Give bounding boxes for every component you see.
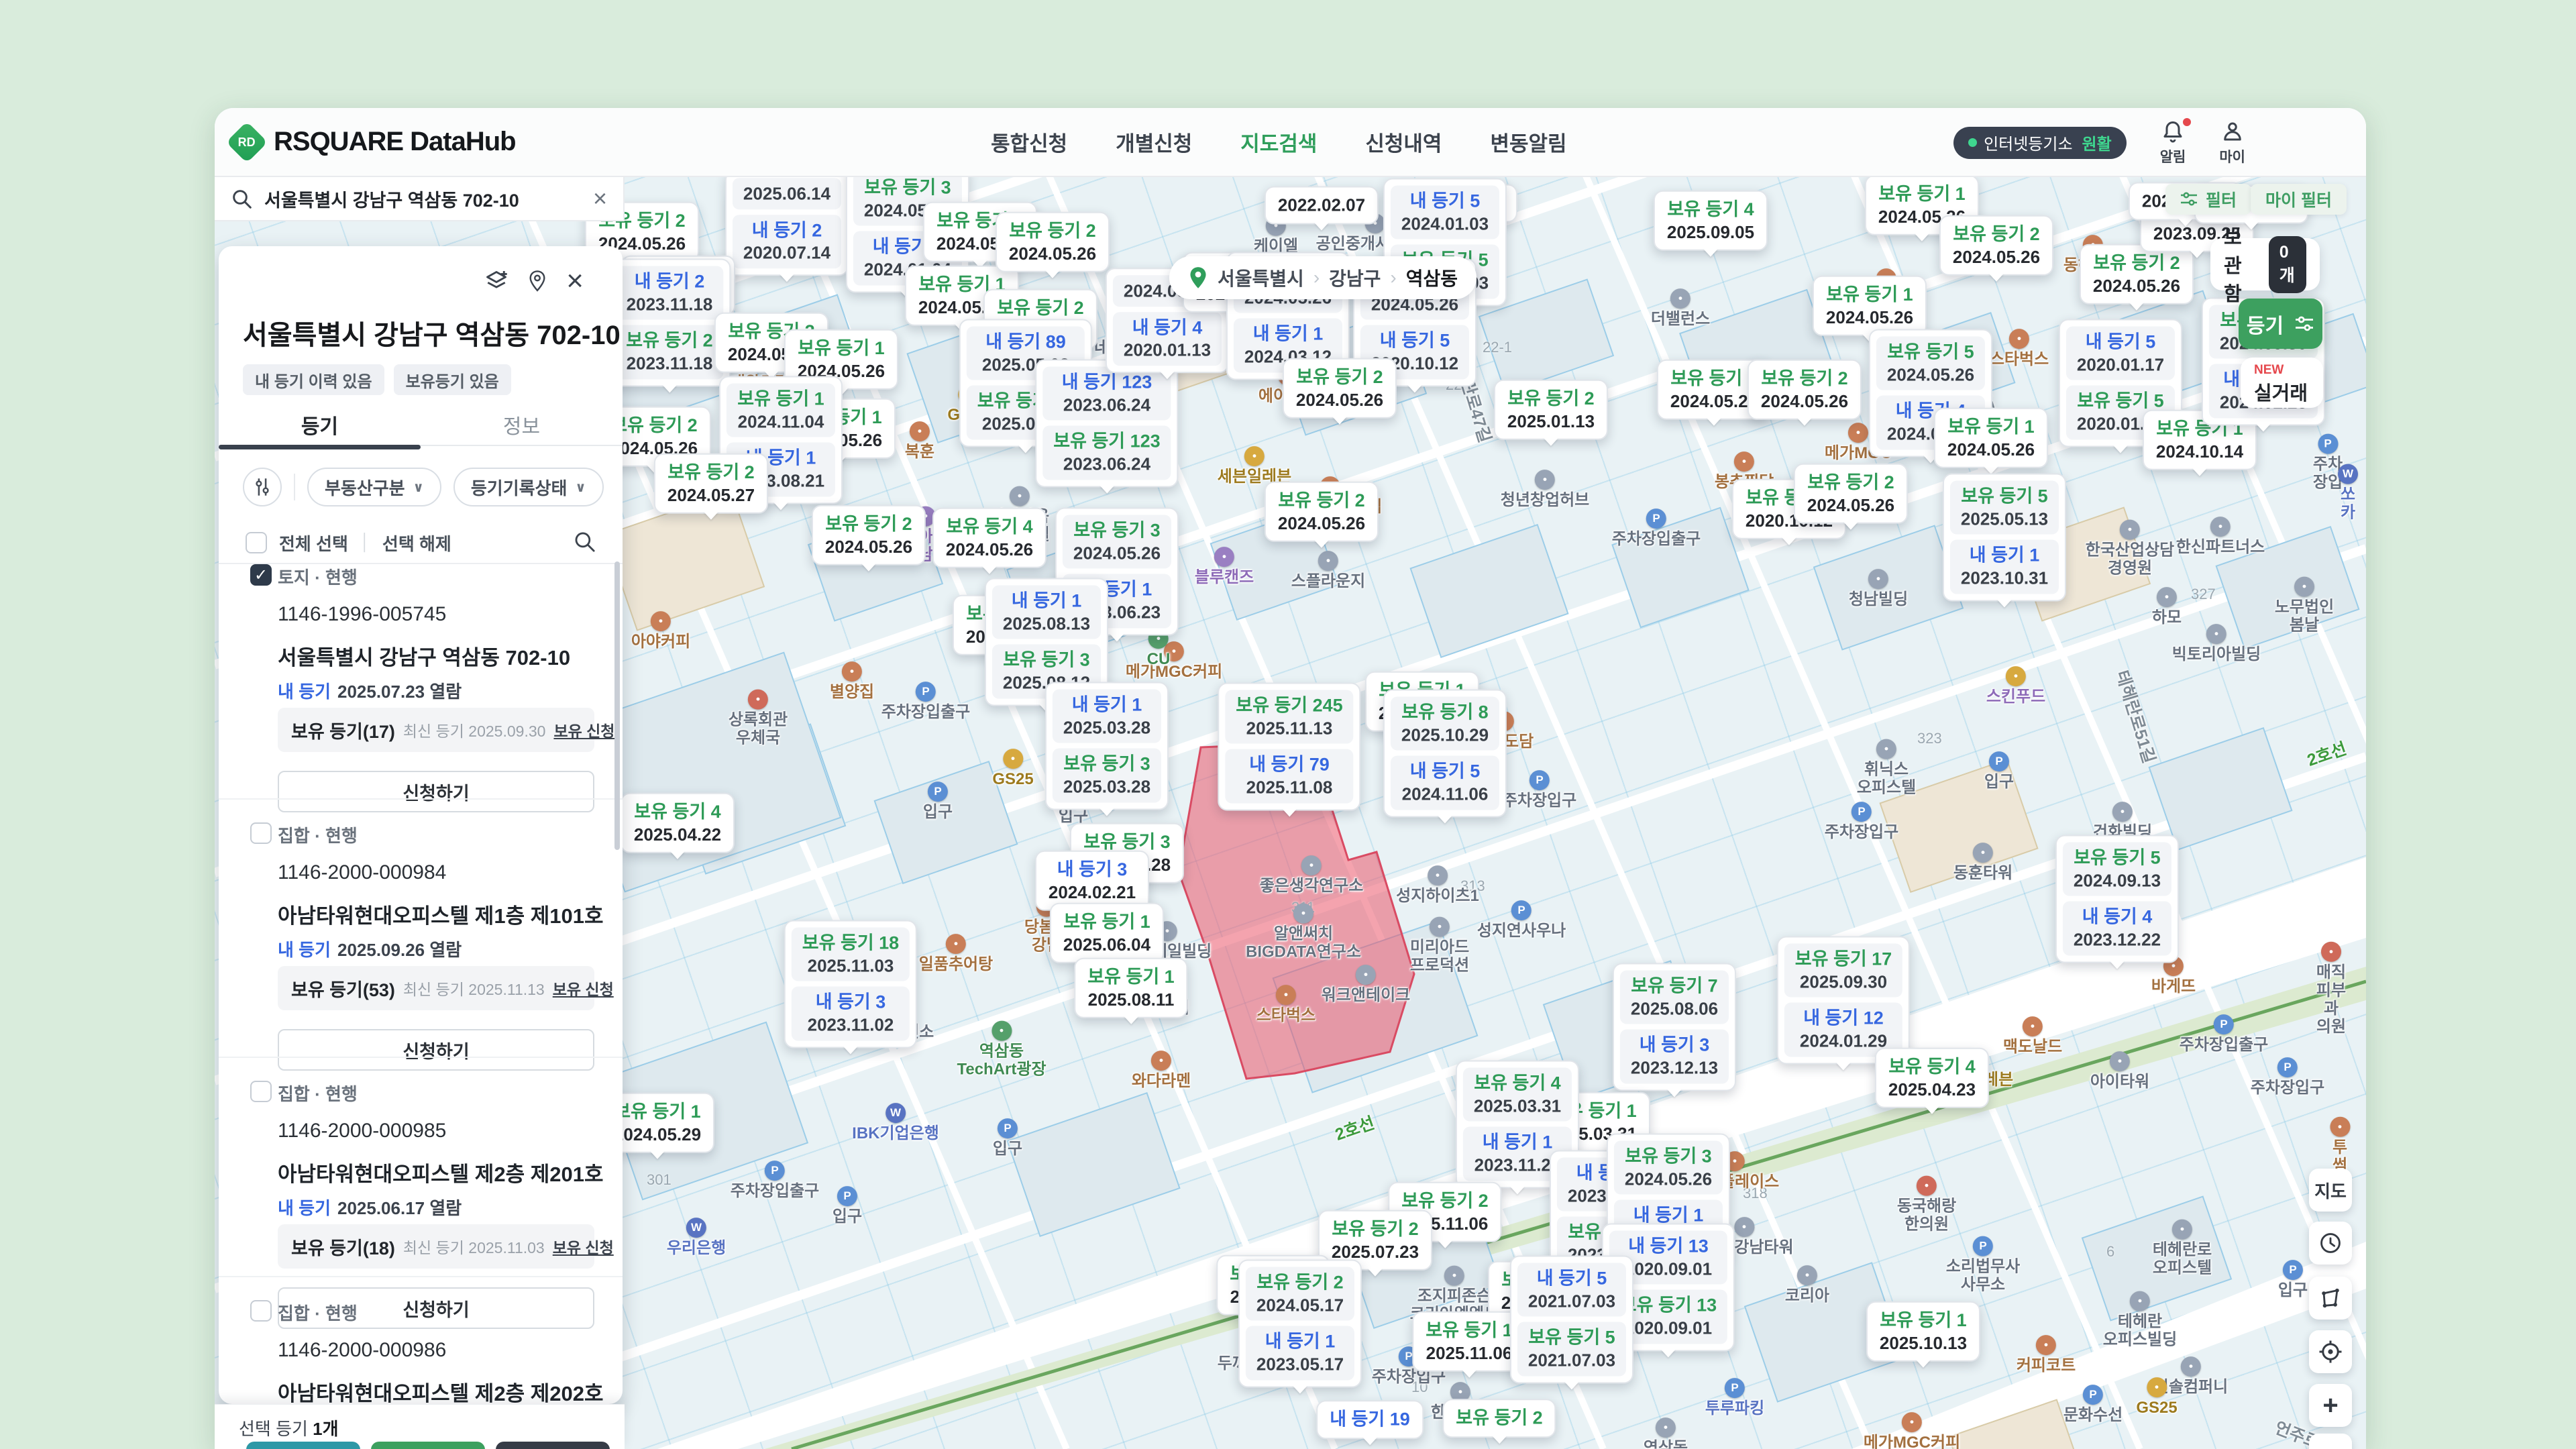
map-poi: • 메가MGC커피 <box>1126 641 1222 682</box>
panel-title: 서울특별시 강남구 역삼동 702-10 <box>243 313 621 352</box>
map-building <box>1008 1093 1180 1236</box>
nav-item-신청내역[interactable]: 신청내역 <box>1365 127 1442 157</box>
map-callout[interactable]: 내 등기 32024.02.21 <box>1035 851 1149 911</box>
map-poi: • 스타벅스 <box>1990 329 2049 369</box>
area-measure-button[interactable] <box>2309 1277 2352 1320</box>
map-poi: • 동훈타워 <box>1953 843 2012 883</box>
map-poi: • 와다라멘 <box>1132 1051 1191 1091</box>
poi-icon: P <box>998 1118 1018 1138</box>
map-poi: • 상록회관 우체국 <box>729 690 788 748</box>
poi-icon: • <box>2321 942 2341 962</box>
map-poi: • 메가MGC커피 <box>1864 1412 1960 1449</box>
map-building <box>2149 728 2292 850</box>
person-icon <box>2220 119 2245 144</box>
nav-item-지도검색[interactable]: 지도검색 <box>1240 127 1317 157</box>
poi-icon: P <box>2283 1260 2303 1280</box>
parcel-number: 323 <box>1917 730 1942 747</box>
map-poi: • 청남빌딩 <box>1849 569 1908 609</box>
poi-icon: • <box>1973 843 1993 863</box>
map-poi: • 코리아 <box>1785 1265 1829 1305</box>
map-poi: • 하모 <box>2152 587 2182 627</box>
storage-count-badge: 0개 <box>2269 236 2306 293</box>
map-poi: • 빅토리아빌딩 <box>2172 624 2261 664</box>
map-poi: • 테헤란로 오피스텔 <box>2153 1220 2212 1278</box>
nav-item-개별신청[interactable]: 개별신청 <box>1116 127 1192 157</box>
own-apply-link[interactable]: 보유 신청 <box>553 977 614 1000</box>
my-location-button[interactable] <box>2309 1330 2352 1373</box>
poi-icon: • <box>2120 520 2140 540</box>
breadcrumb[interactable]: 서울특별시 › 강남구 › 역삼동 <box>1169 256 1477 299</box>
poi-icon: P <box>1973 1236 1993 1256</box>
poi-icon: • <box>1656 1417 1676 1438</box>
active-tab-underline <box>219 445 421 449</box>
divider <box>219 1276 623 1277</box>
map-callout[interactable]: 보유 등기 12025.10.13 <box>1866 1301 1980 1362</box>
map-type-button[interactable]: 지도 <box>2309 1169 2352 1212</box>
poi-icon: • <box>1535 470 1555 490</box>
map-callout[interactable]: 보유 등기 12024.05.26 <box>1934 408 2048 468</box>
map-poi: • 동국해랑 한의원 <box>1897 1176 1956 1234</box>
map-poi: • 아이타워 <box>2090 1051 2149 1091</box>
map-callout[interactable]: 보유 등기 182025.11.03내 등기 32023.11.02 <box>784 920 917 1049</box>
map-poi: • 워크앤테이크 <box>1322 965 1410 1005</box>
map-callout[interactable]: 보유 등기 52024.09.13내 등기 42023.12.22 <box>2055 835 2179 963</box>
item-type: 집합 · 현행 <box>278 1300 358 1325</box>
poi-icon: P <box>1725 1378 1745 1398</box>
poi-icon: W <box>686 1218 706 1238</box>
map-poi: • 좋은생각연구소 <box>1260 855 1364 896</box>
status-dot <box>1968 138 1977 147</box>
logo[interactable]: RD RSQUARE DataHub <box>232 127 516 157</box>
select-all-label[interactable]: 전체 선택 <box>279 531 348 555</box>
divider <box>219 798 623 800</box>
map-callout[interactable]: 보유 등기 22024.05.26 <box>1283 358 1397 419</box>
map-callout[interactable]: 보유 등기 22024.05.26 <box>1939 215 2053 276</box>
breadcrumb-gu[interactable]: 강남구 <box>1329 264 1381 291</box>
item-title[interactable]: 아남타워현대오피스텔 제2층 제201호 <box>278 1157 603 1187</box>
alarm-red-dot <box>2183 118 2191 126</box>
poi-icon: • <box>2036 1335 2056 1355</box>
apply-button[interactable]: 신청하기 <box>278 1029 594 1071</box>
map-poi: • 알앤써치 BIGDATA연구소 <box>1246 904 1361 962</box>
poi-icon: • <box>1010 486 1030 506</box>
owned-registry-box[interactable]: 보유 등기(18)최신 등기 2025.11.03 보유 신청 │› <box>278 1224 594 1269</box>
poi-icon: W <box>885 1103 906 1123</box>
map-poi: P 주차장입구 <box>1825 802 1898 842</box>
map-callout[interactable]: 보유 등기 22024.05.17내 등기 12023.05.17 <box>1238 1260 1362 1388</box>
poi-icon: • <box>748 690 768 710</box>
bottom-action-button[interactable] <box>496 1442 610 1449</box>
poi-icon: • <box>946 934 966 954</box>
my-page-button[interactable]: 마이 <box>2219 119 2245 166</box>
item-code: 1146-1996-005745 <box>278 603 446 626</box>
map-callout[interactable]: 보유 등기 22024.05.26 <box>1265 482 1379 542</box>
poi-icon: • <box>651 611 671 631</box>
apply-button[interactable]: 신청하기 <box>278 771 594 812</box>
map-callout[interactable]: 보유 등기 42024.05.26 <box>932 508 1046 568</box>
item-checkbox[interactable] <box>250 1300 272 1322</box>
poi-icon: P <box>837 1186 857 1206</box>
map-callout[interactable]: 보유 등기 22024.05.27 <box>654 453 768 514</box>
map-callout[interactable]: 내 등기 22023.11.18보유 등기 22023.11.18 <box>608 259 731 387</box>
poi-icon: • <box>842 661 862 682</box>
clock-icon <box>2319 1232 2342 1254</box>
map-callout[interactable]: 보유 등기 42025.04.22 <box>621 793 735 853</box>
poi-icon: • <box>1734 1217 1754 1237</box>
divider <box>219 1057 623 1058</box>
map-poi: P 주차장입구 <box>2251 1057 2324 1097</box>
map-poi: P 주차장입구 <box>1503 770 1576 810</box>
poi-icon: • <box>1356 965 1376 985</box>
map-poi: • 휘닉스 오피스텔 <box>1857 739 1916 798</box>
poi-icon: • <box>1430 917 1450 937</box>
item-checkbox[interactable]: ✓ <box>250 564 272 586</box>
map-poi: • 복훈 <box>905 421 934 462</box>
top-header: RD RSQUARE DataHub 통합신청개별신청지도검색신청내역변동알림 … <box>215 108 2366 177</box>
map-callout[interactable]: 보유 등기 22024.05.26 <box>812 505 926 566</box>
item-my-registry: 내 등기2025.09.26 열람 <box>278 936 462 961</box>
map-callout[interactable]: 보유 등기 22024.05.26 <box>1794 464 1908 524</box>
poi-icon: • <box>2130 1291 2150 1311</box>
list-search-icon[interactable] <box>573 530 596 556</box>
main-nav: 통합신청개별신청지도검색신청내역변동알림 <box>991 127 1566 157</box>
poi-icon: P <box>928 782 948 802</box>
map-poi: • 미리아드 프로덕션 <box>1410 917 1469 975</box>
search-icon <box>231 188 252 209</box>
poi-icon: • <box>2009 329 2029 349</box>
divider <box>294 474 295 500</box>
close-panel-button[interactable]: × <box>566 269 584 292</box>
owned-registry-box[interactable]: 보유 등기(17)최신 등기 2025.09.30 보유 신청 │› <box>278 708 594 752</box>
map-poi: • GS25 <box>2136 1377 2177 1417</box>
poi-icon: • <box>2006 666 2026 686</box>
panel-scrollbar[interactable] <box>614 561 620 850</box>
item-type: 토지 · 현행 <box>278 564 358 589</box>
chevron-down-icon: ∨ <box>575 479 586 496</box>
poi-icon: • <box>1318 551 1338 571</box>
map-poi: W 쏘카 <box>2338 464 2358 523</box>
poi-icon: W <box>2338 464 2358 484</box>
map-callout[interactable]: 보유 등기 52025.05.13내 등기 12023.10.31 <box>1943 474 2066 602</box>
poi-icon: • <box>1003 749 1023 769</box>
parcel-number: 22-1 <box>1483 339 1512 356</box>
search-clear-button[interactable]: × <box>593 186 607 211</box>
map-poi: • 성지하이츠1 <box>1396 865 1479 906</box>
owned-registry-box[interactable]: 보유 등기(53)최신 등기 2025.11.13 보유 신청 │› <box>278 966 594 1010</box>
map-poi: P 주차장입출구 <box>881 682 970 722</box>
map-callout[interactable]: 보유 등기 42025.04.23 <box>1875 1048 1989 1108</box>
map-building <box>1411 525 1568 657</box>
registry-status-filter[interactable]: 등기기록상태∨ <box>453 468 604 506</box>
chevron-right-icon: › <box>1313 267 1320 288</box>
map-poi: • 매직피부과 의원 <box>2314 942 2349 1036</box>
poi-icon: • <box>2023 1016 2043 1036</box>
poi-icon: • <box>1151 1051 1171 1071</box>
map-callout[interactable]: 보유 등기 12025.06.04 <box>1050 903 1164 963</box>
poi-icon: P <box>2277 1057 2298 1077</box>
poi-icon: • <box>1797 1265 1817 1285</box>
map-poi: • 역삼동 TechArt광장 <box>957 1021 1046 1079</box>
item-my-registry: 내 등기2025.07.23 열람 <box>278 678 462 703</box>
sort-sliders-icon <box>254 478 271 496</box>
layers-add-icon[interactable] <box>484 269 508 293</box>
map-poi: W 우리은행 <box>667 1218 726 1258</box>
chevron-right-icon: › <box>1390 267 1396 288</box>
poi-icon: • <box>1848 423 1868 443</box>
map-poi: • 일품추어탕 <box>919 934 993 974</box>
poi-icon: • <box>1444 1266 1464 1286</box>
filter-button[interactable]: 필터 <box>2165 184 2251 215</box>
deselect-label[interactable]: 선택 해제 <box>382 531 451 555</box>
history-button[interactable] <box>2309 1222 2352 1265</box>
item-code: 1146-2000-000984 <box>278 861 446 884</box>
map-poi: P 소리법무사 사무소 <box>1946 1236 2020 1295</box>
real-deal-button[interactable]: NEW 실거래 <box>2241 358 2323 408</box>
sliders-icon <box>2180 191 2198 207</box>
map-poi: P 투루파킹 <box>1705 1378 1764 1418</box>
poi-icon: • <box>910 421 930 441</box>
poi-icon: • <box>1734 451 1754 472</box>
poi-icon: P <box>2318 434 2338 454</box>
crosshair-icon <box>2318 1340 2343 1364</box>
poi-icon: P <box>2214 1014 2234 1034</box>
map-callout[interactable]: 보유 등기 42025.09.05 <box>1654 191 1768 251</box>
map-poi: • 한신파트너스 <box>2176 517 2265 557</box>
poi-icon: • <box>2147 1377 2167 1397</box>
property-type-filter[interactable]: 부동산구분∨ <box>307 468 441 506</box>
poi-icon: P <box>1511 900 1532 920</box>
parcel-number: 301 <box>647 1171 672 1189</box>
tab-deunggi[interactable]: 등기 <box>219 410 421 445</box>
sliders-icon <box>2294 315 2314 333</box>
nav-item-변동알림[interactable]: 변동알림 <box>1490 127 1566 157</box>
map-poi: W IBK기업은행 <box>852 1103 939 1143</box>
bell-icon <box>2161 119 2185 144</box>
own-apply-link[interactable]: 보유 신청 <box>553 1235 614 1258</box>
pin-icon <box>1188 266 1208 289</box>
search-input[interactable] <box>263 188 593 210</box>
panel-tag: 보유등기 있음 <box>394 364 511 395</box>
item-type: 집합 · 현행 <box>278 822 358 847</box>
alarm-button[interactable]: 알림 <box>2160 119 2186 166</box>
poi-icon: P <box>916 682 936 702</box>
map-callout[interactable]: 보유 등기 12025.08.11 <box>1074 958 1187 1018</box>
poi-icon: • <box>1214 547 1234 567</box>
poi-icon: • <box>1276 985 1296 1005</box>
item-title[interactable]: 아남타워현대오피스텔 제2층 제202호 <box>278 1377 603 1404</box>
poi-icon: • <box>1428 865 1448 885</box>
map-poi: P 문화수선 <box>2063 1385 2123 1425</box>
polygon-icon <box>2319 1287 2342 1309</box>
selection-bottom-bar: 선택 등기 1개 <box>215 1404 625 1449</box>
poi-icon: • <box>2157 587 2177 607</box>
panel-tag: 내 등기 이력 있음 <box>243 364 384 395</box>
item-code: 1146-2000-000985 <box>278 1120 446 1142</box>
map-callout[interactable]: 보유 등기 2452025.11.13내 등기 792025.11.08 <box>1218 683 1360 811</box>
map-callout[interactable]: 내 등기 12025.03.28보유 등기 32025.03.28 <box>1045 682 1169 810</box>
storage-label: 보관함 <box>2224 222 2259 307</box>
poi-icon: • <box>2172 1220 2192 1240</box>
map-callout[interactable]: 내 등기 19 <box>1316 1400 1424 1439</box>
chevron-down-icon: ∨ <box>413 479 424 496</box>
poi-icon: • <box>1868 569 1888 589</box>
map-callout[interactable]: 보유 등기 22024.05.26 <box>2080 244 2194 305</box>
map-callout[interactable]: 보유 등기 72025.08.06내 등기 32023.12.13 <box>1613 963 1736 1091</box>
storage-box[interactable]: 보관함 0개 <box>2210 238 2320 290</box>
panel-tags: 내 등기 이력 있음보유등기 있음 <box>243 364 511 395</box>
map-poi: • 한국산업상담 경영원 <box>2086 520 2174 578</box>
poi-icon: • <box>1244 446 1265 466</box>
poi-icon: • <box>2206 624 2226 644</box>
deunggi-mode-button[interactable]: 등기 <box>2239 299 2322 349</box>
map-poi: • 노무법인봄날 <box>2273 577 2335 635</box>
map-callout[interactable]: 보유 등기 22024.05.26 <box>1748 360 1862 420</box>
zoom-in-button[interactable]: + <box>2309 1384 2352 1427</box>
search-bar: × <box>215 177 625 221</box>
map-poi: • 커피코트 <box>2017 1335 2076 1375</box>
map-poi: P 입구 <box>833 1186 862 1226</box>
result-panel: × 서울특별시 강남구 역삼동 702-10 내 등기 이력 있음보유등기 있음… <box>219 246 623 1404</box>
map-poi: • 청년창업허브 <box>1501 470 1589 510</box>
breadcrumb-city[interactable]: 서울특별시 <box>1218 264 1304 291</box>
map-poi: P 주차장입출구 <box>2180 1014 2268 1055</box>
app-window: • 아야커피• 별양집• 메가MGC커피• 상록회관 우체국P 주차장입출구P … <box>215 108 2366 1449</box>
poi-icon: P <box>1529 770 1550 790</box>
sort-button[interactable] <box>243 468 282 506</box>
map-poi: • 테헤란 오피스빌딩 <box>2103 1291 2177 1350</box>
map-callout[interactable]: 보유 등기 22025.01.13 <box>1494 380 1608 440</box>
map-poi: • 역삼동 <box>1644 1417 1688 1449</box>
map-poi: • GS25 <box>992 749 1033 789</box>
map-callout[interactable]: 보유 등기 22024.05.26 <box>996 212 1110 272</box>
map-callout[interactable]: 내 등기 1232023.06.24보유 등기 1232023.06.24 <box>1035 360 1178 488</box>
new-badge: NEW <box>2254 363 2323 378</box>
nav-item-통합신청[interactable]: 통합신청 <box>991 127 1067 157</box>
poi-icon: • <box>2210 517 2231 537</box>
item-title[interactable]: 서울특별시 강남구 역삼동 702-10 <box>278 641 570 671</box>
parcel-number: 6 <box>2106 1243 2114 1260</box>
poi-icon: • <box>2181 1356 2201 1377</box>
locate-on-map-icon[interactable] <box>526 270 549 292</box>
map-callout[interactable]: 내 등기 52021.07.03보유 등기 52021.07.03 <box>1510 1256 1633 1384</box>
map-poi: • 스타벅스 <box>1256 985 1316 1025</box>
map-callout[interactable]: 2025.06.14내 등기 22020.07.14 <box>725 170 849 276</box>
breadcrumb-dong[interactable]: 역삼동 <box>1406 264 1458 291</box>
poi-icon: • <box>1917 1176 1937 1196</box>
map-callout[interactable]: 2022.02.07 <box>1265 186 1379 225</box>
map-callout[interactable]: 보유 등기 82025.10.29내 등기 52024.11.06 <box>1383 690 1507 818</box>
own-apply-link[interactable]: 보유 신청 <box>553 718 614 741</box>
poi-icon: P <box>1646 508 1666 529</box>
parcel-number: 327 <box>2191 586 2216 603</box>
map-poi: P 입구 <box>2278 1260 2308 1300</box>
item-code: 1146-2000-000986 <box>278 1339 446 1362</box>
poi-icon: P <box>1989 751 2009 771</box>
map-poi: • 스플라운지 <box>1291 551 1365 591</box>
bottom-action-button[interactable] <box>371 1442 485 1449</box>
map-poi: • 아야커피 <box>631 611 690 651</box>
poi-icon: • <box>1902 1412 1922 1432</box>
tab-info[interactable]: 정보 <box>421 410 623 445</box>
item-checkbox[interactable] <box>250 1081 272 1102</box>
iros-status-badge: 인터넷등기소 원활 <box>1953 127 2127 159</box>
map-poi: P 주차장입출구 <box>731 1161 819 1201</box>
poi-icon: • <box>1876 739 1896 759</box>
poi-icon: P <box>2083 1385 2103 1405</box>
poi-icon: • <box>1301 855 1322 875</box>
poi-icon: • <box>2112 802 2133 822</box>
map-callout[interactable]: 보유 등기 12024.05.26 <box>1813 276 1927 336</box>
poi-icon: • <box>991 1021 1012 1041</box>
map-poi: P 성지연사우나 <box>1477 900 1566 941</box>
map-poi: P 입구 <box>923 782 953 822</box>
map-poi: P 입구 <box>1984 751 2014 792</box>
map-poi: • 스킨푸드 <box>1986 666 2045 706</box>
zoom-out-button[interactable]: − <box>2309 1434 2352 1449</box>
poi-icon: • <box>1293 904 1313 924</box>
poi-icon: • <box>1670 288 1690 309</box>
map-poi: • 별양집 <box>830 661 874 702</box>
poi-icon: • <box>2330 1117 2350 1137</box>
item-title[interactable]: 아남타워현대오피스텔 제1층 제101호 <box>278 899 603 929</box>
item-my-registry: 내 등기2025.06.17 열람 <box>278 1195 462 1220</box>
item-checkbox[interactable] <box>250 822 272 844</box>
map-poi: P 입구 <box>993 1118 1022 1159</box>
poi-icon: P <box>1851 802 1872 822</box>
poi-icon: • <box>2110 1051 2130 1071</box>
map-poi: • 더밸런스 <box>1651 288 1710 329</box>
poi-icon: • <box>2294 577 2314 597</box>
bottom-action-button[interactable] <box>246 1442 360 1449</box>
divider: │ <box>360 533 370 552</box>
map-poi: P 주차장입출구 <box>1612 508 1701 549</box>
map-callout[interactable]: 보유 등기 12025.11.06 <box>1412 1311 1525 1372</box>
item-type: 집합 · 현행 <box>278 1081 358 1106</box>
map-callout[interactable]: 보유 등기 172025.09.30내 등기 122024.01.29 <box>1777 936 1910 1065</box>
poi-icon: P <box>765 1161 785 1181</box>
map-poi: • 블루캔즈 <box>1195 547 1254 587</box>
map-callout[interactable]: 보유 등기 2 <box>1442 1399 1556 1438</box>
logo-icon: RD <box>226 121 268 162</box>
select-all-checkbox[interactable] <box>246 532 267 553</box>
my-filter-button[interactable]: 마이 필터 <box>2251 184 2347 215</box>
